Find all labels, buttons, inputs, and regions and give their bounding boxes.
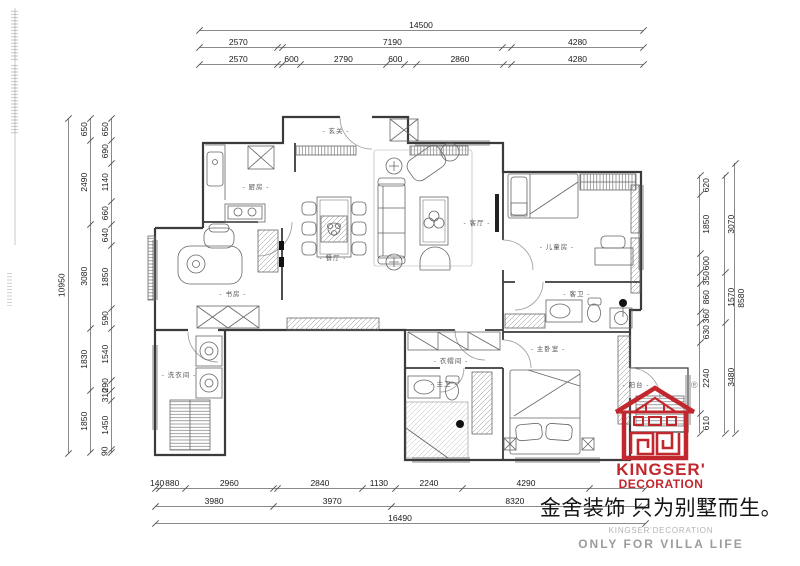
dim-segment: 1540 — [99, 328, 112, 380]
room-label-entry: - 玄关 - — [323, 126, 350, 135]
dim-value: 880 — [165, 479, 179, 488]
corridor-cabinets — [197, 306, 545, 330]
laundry-furniture — [170, 336, 222, 450]
logo-brand-line2: DECORATION — [606, 478, 716, 490]
dim-value: 600 — [388, 55, 402, 64]
dim-segment: 2570 — [199, 35, 278, 48]
dim-value: 10950 — [58, 274, 67, 298]
dim-value: 640 — [101, 228, 110, 242]
dim-segment: 1850 — [78, 390, 91, 453]
room-label-kitchen: - 厨房 - — [243, 182, 270, 191]
dim-segment: 2570 — [199, 52, 278, 65]
dim-value: 1830 — [80, 350, 89, 369]
room-label-study: - 书房 - — [220, 289, 247, 298]
dim-right-overall: 8580 — [734, 163, 747, 433]
master-bath-door-arc — [440, 368, 464, 392]
dim-segment: 2240 — [699, 342, 712, 413]
guest-bath-fixtures — [546, 298, 632, 328]
dim-value: 600 — [284, 55, 298, 64]
dim-value: 3980 — [205, 497, 224, 506]
sheet-margin-marks — [7, 8, 18, 306]
room-label-master-bath: - 主卫 - — [431, 379, 458, 388]
dim-segment: 2840 — [278, 476, 362, 489]
footer-brand-en: KINGSER'DECORATION — [558, 527, 764, 535]
dim-value: 4280 — [568, 38, 587, 47]
room-label-balcony: - 阳台 - — [623, 380, 650, 389]
master-bedroom-furniture — [504, 336, 630, 454]
dim-segment: 640 — [99, 224, 112, 246]
dim-value: 2240 — [420, 479, 439, 488]
room-label-living: - 客厅 - — [464, 218, 491, 227]
dim-segment: 690 — [99, 140, 112, 163]
dim-value: 1140 — [101, 173, 110, 191]
dim-segment: 3970 — [273, 494, 391, 507]
dim-value: 1450 — [101, 416, 110, 435]
dim-value: 2570 — [229, 38, 248, 47]
dim-value: 1850 — [80, 412, 89, 431]
kitchen-furniture — [205, 145, 284, 272]
dim-segment: 2790 — [301, 52, 386, 65]
entry-furniture — [296, 119, 468, 155]
dim-value: 8580 — [737, 289, 746, 308]
dim-left-middle: 6502490308018301850 — [78, 118, 91, 453]
dim-gap — [404, 52, 416, 65]
slogan-chinese: 金舍装饰 只为别墅而生。 — [538, 496, 784, 521]
room-label-guest-bath: - 客卫 - — [564, 289, 591, 298]
dim-value: 2490 — [80, 173, 89, 192]
dim-value: 1130 — [370, 479, 388, 488]
dim-segment: 90 — [99, 450, 112, 453]
dim-segment: 10950 — [56, 118, 69, 453]
dim-segment: 1830 — [78, 328, 91, 390]
registered-mark: ® — [691, 381, 698, 390]
dim-segment: 590 — [99, 309, 112, 329]
dim-value: 3970 — [323, 497, 342, 506]
floorplan-page: { "dimensions": { "top": { "row1": [1450… — [0, 0, 800, 566]
dim-segment: 4290 — [462, 476, 589, 489]
dim-value: 4290 — [517, 479, 536, 488]
dim-segment: 1850 — [99, 246, 112, 309]
dim-segment: 2960 — [185, 476, 273, 489]
dim-value: 690 — [101, 145, 110, 159]
room-label-laundry: - 洗衣间 - — [162, 370, 196, 379]
kids-room-furniture — [508, 174, 640, 293]
dim-value: 1850 — [101, 268, 110, 287]
living-room-furniture — [374, 143, 499, 270]
dim-value: 860 — [702, 290, 711, 304]
cloakroom-wardrobe — [408, 332, 500, 350]
dim-segment: 1450 — [99, 401, 112, 450]
dim-value: 2240 — [702, 369, 711, 388]
dim-segment: 600 — [282, 52, 300, 65]
dim-segment: 860 — [699, 284, 712, 311]
dim-value: 4280 — [568, 55, 587, 64]
dim-segment: 880 — [159, 476, 185, 489]
guest-bath-door-arc — [515, 282, 543, 310]
dim-segment: 600 — [386, 52, 404, 65]
dim-segment: 1130 — [362, 476, 396, 489]
dim-segment: 8580 — [734, 163, 747, 433]
dim-value: 1540 — [101, 345, 110, 364]
room-label-cloakroom: - 衣帽间 - — [434, 356, 468, 365]
dim-value: 16490 — [388, 514, 412, 523]
dim-value: 2960 — [220, 479, 239, 488]
bedroom-door-arc — [503, 340, 531, 368]
dim-value: 630 — [702, 325, 711, 339]
dim-top-row3: 2570600279060028604280 — [199, 52, 643, 65]
logo-brand-line1: KINGSER' — [606, 461, 716, 478]
dim-segment: 660 — [99, 202, 112, 224]
dim-value: 1850 — [702, 215, 711, 234]
kids-room-door-arc — [503, 240, 533, 270]
dining-set — [302, 197, 366, 257]
dim-value: 14500 — [409, 21, 433, 30]
footer-tagline-en: ONLY FOR VILLA LIFE — [558, 538, 764, 550]
dim-value: 2570 — [229, 55, 248, 64]
dim-value: 610 — [702, 416, 711, 430]
study-furniture — [148, 224, 242, 300]
dim-value: 8320 — [505, 497, 524, 506]
dim-segment: 650 — [99, 118, 112, 140]
dim-bottom-row1: 14088029602840113022404290 — [155, 476, 645, 489]
room-label-master-bed: - 主卧室 - — [531, 344, 565, 353]
dim-right-inner: 62018506003508603606302240610 — [699, 175, 712, 433]
dim-segment: 1850 — [699, 195, 712, 254]
dim-value: 90 — [101, 447, 110, 456]
dim-segment: 2490 — [78, 140, 91, 224]
tv — [495, 194, 499, 232]
room-label-kids-room: - 儿童房 - — [540, 242, 574, 251]
dim-segment: 650 — [78, 118, 91, 140]
dim-segment: 4280 — [512, 52, 643, 65]
dim-value: 7190 — [383, 38, 402, 47]
dim-segment: 14500 — [199, 18, 643, 31]
dim-value: 590 — [101, 311, 110, 325]
dim-value: 3080 — [80, 267, 89, 286]
dim-value: 2790 — [334, 55, 353, 64]
dim-segment: 7190 — [282, 35, 502, 48]
dim-left-inner: 650690114066064018505901540290310145090 — [99, 118, 112, 453]
dim-segment: 1140 — [99, 163, 112, 202]
dim-left-overall: 10950 — [56, 118, 69, 453]
dim-segment: 2860 — [416, 52, 504, 65]
dim-value: 650 — [101, 122, 110, 136]
dim-value: 650 — [80, 122, 89, 136]
dim-top-overall: 14500 — [199, 18, 643, 31]
dim-value: 2860 — [450, 55, 469, 64]
dim-segment: 3980 — [155, 494, 273, 507]
dim-value: 2840 — [310, 479, 329, 488]
dim-segment: 2240 — [396, 476, 463, 489]
dim-value: 660 — [101, 206, 110, 220]
dim-segment: 610 — [699, 414, 712, 433]
room-label-dining: - 餐厅 - — [320, 253, 347, 262]
dim-top-row2: 257071904280 — [199, 35, 643, 48]
dim-segment: 4280 — [512, 35, 643, 48]
dim-segment: 3080 — [78, 224, 91, 328]
